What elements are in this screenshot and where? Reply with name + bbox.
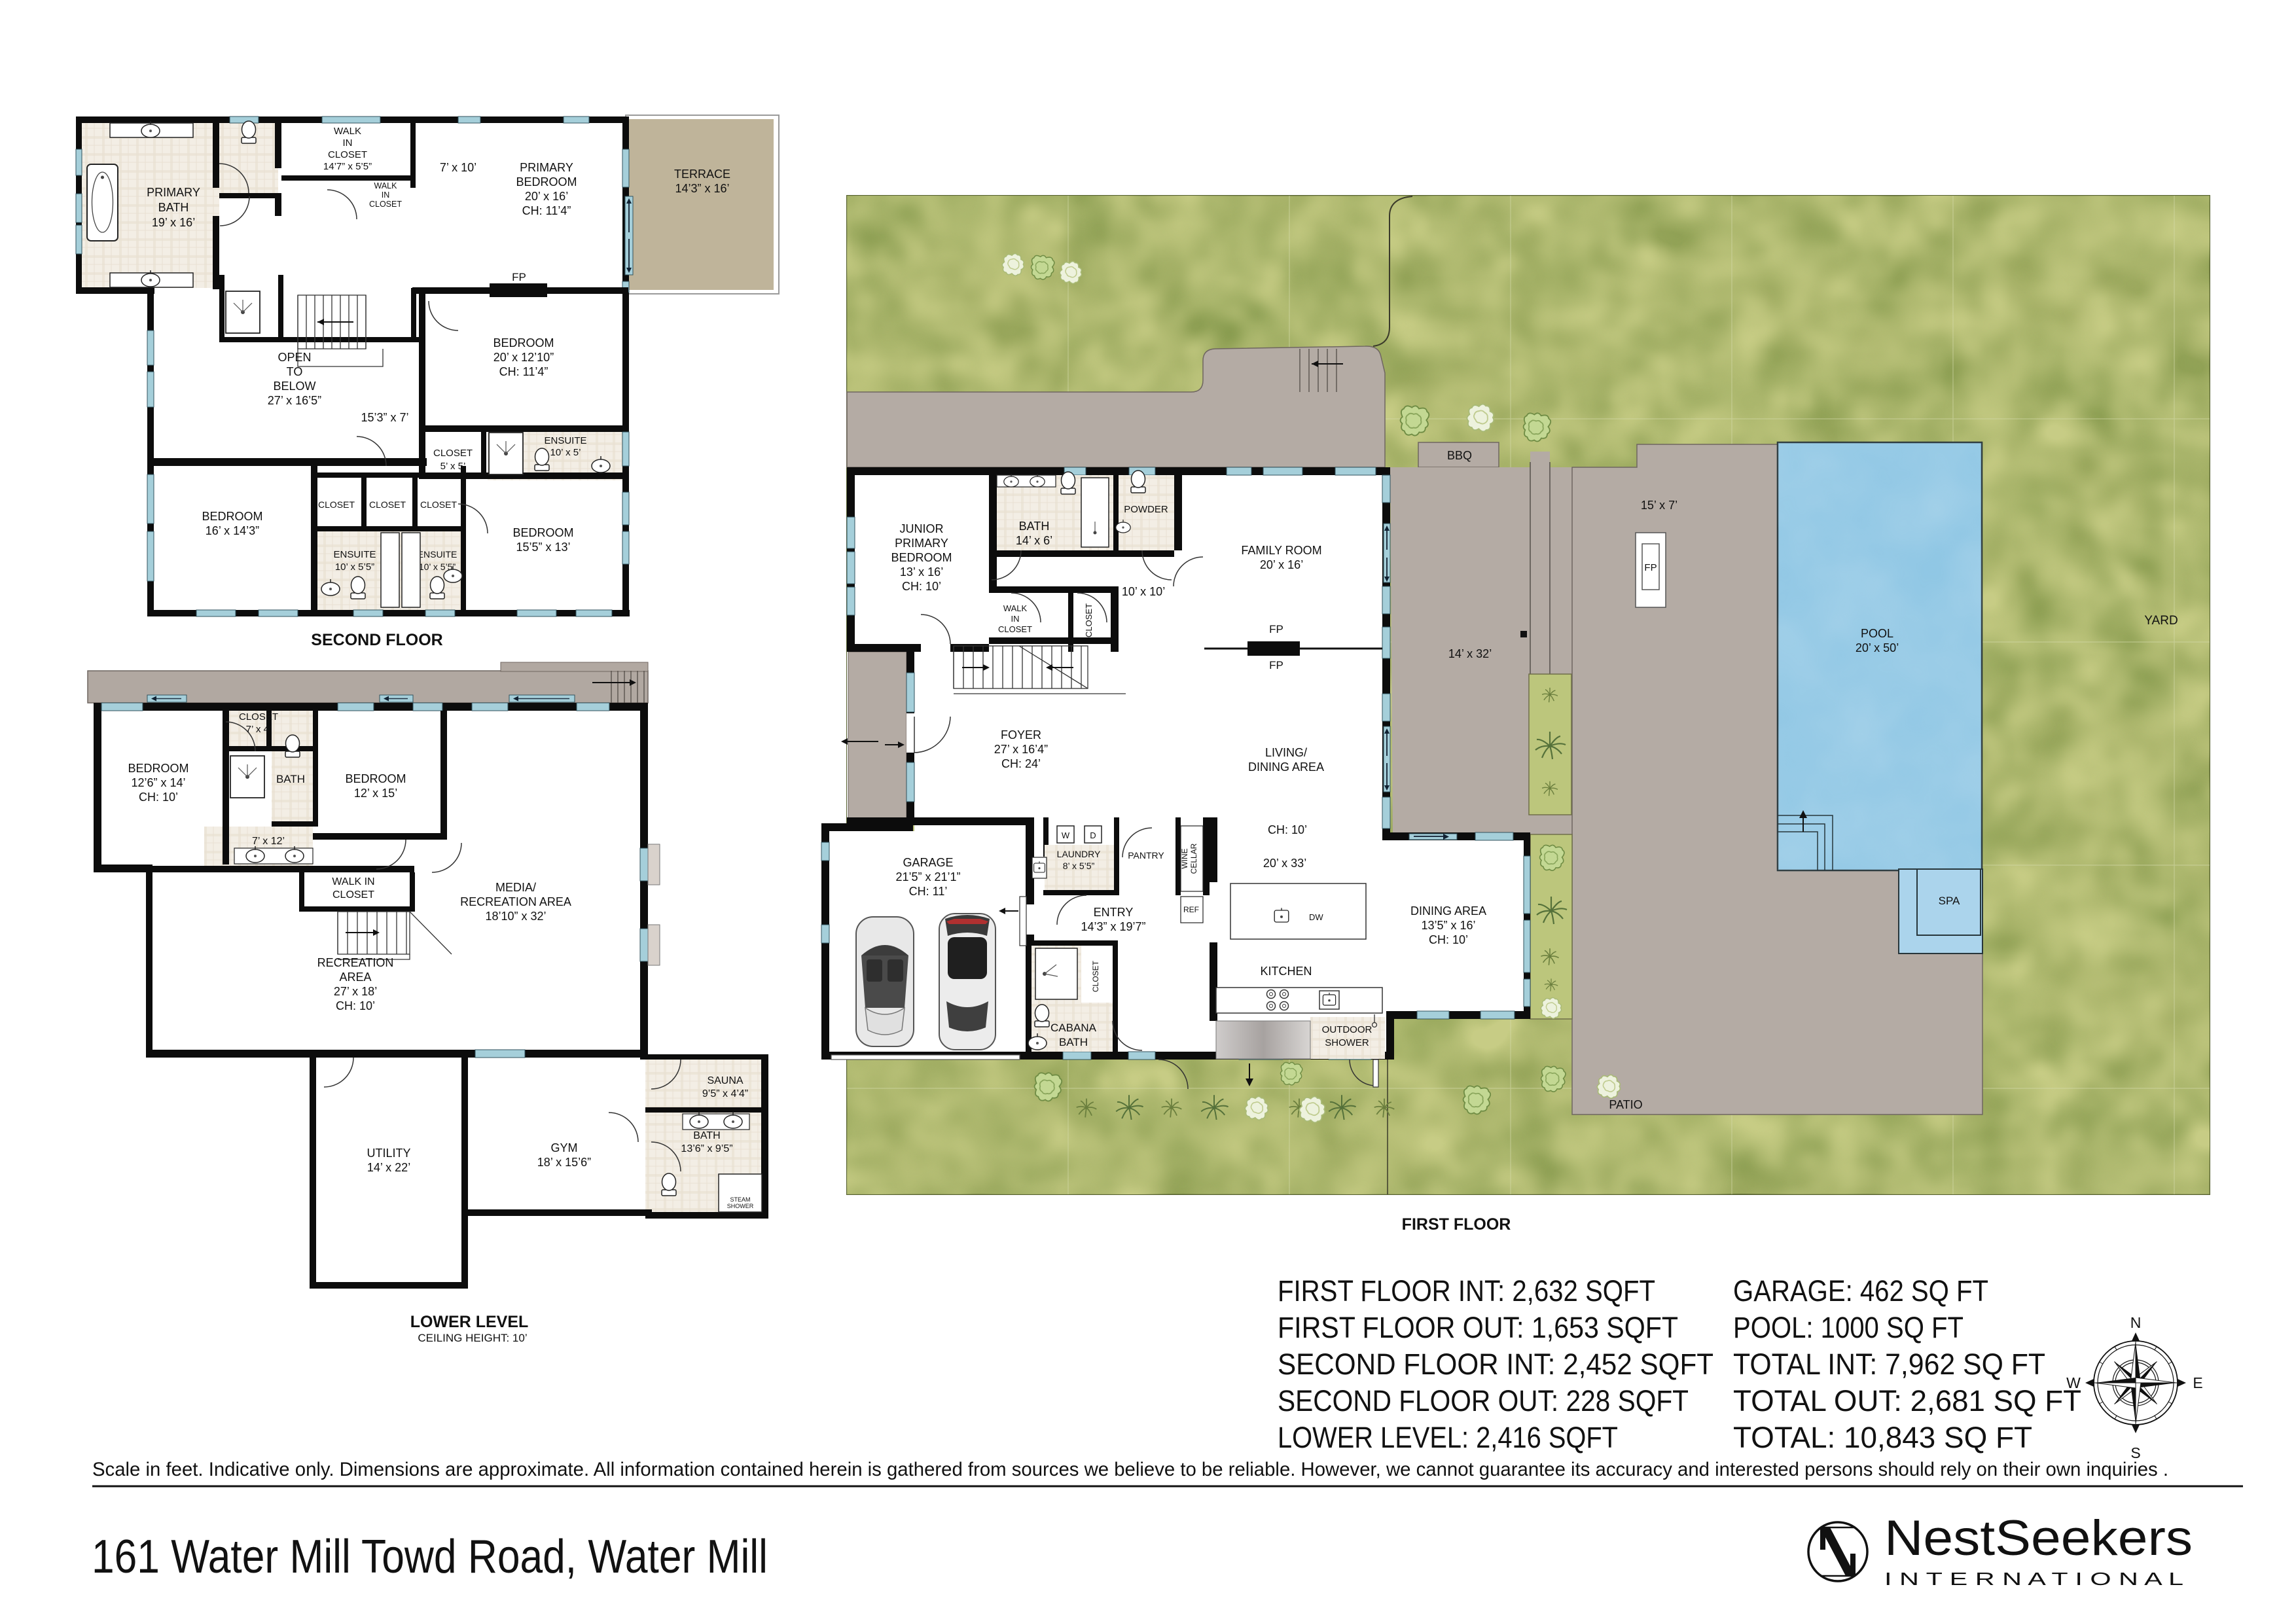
svg-text:WALK: WALK <box>334 126 361 137</box>
svg-text:OUTDOOR: OUTDOOR <box>1322 1024 1372 1035</box>
svg-text:14’3” x 16’: 14’3” x 16’ <box>675 182 729 195</box>
svg-text:16’ x 14’3”: 16’ x 14’3” <box>206 524 259 537</box>
svg-text:CEILING HEIGHT: 10’: CEILING HEIGHT: 10’ <box>418 1332 527 1344</box>
svg-text:MEDIA/: MEDIA/ <box>495 881 536 894</box>
svg-text:PATIO: PATIO <box>1609 1098 1642 1111</box>
svg-text:SHOWER: SHOWER <box>727 1203 754 1209</box>
svg-text:STEAM: STEAM <box>730 1196 750 1203</box>
svg-text:FOYER: FOYER <box>1001 728 1041 741</box>
svg-text:TOTAL INT: 7,962 SQ FT: TOTAL INT: 7,962 SQ FT <box>1733 1347 2045 1381</box>
svg-text:BEDROOM: BEDROOM <box>493 336 554 349</box>
svg-text:CH: 24’: CH: 24’ <box>1001 757 1041 770</box>
svg-text:20’ x 16’: 20’ x 16’ <box>525 190 568 203</box>
svg-text:14’ x 32’: 14’ x 32’ <box>1448 647 1492 660</box>
svg-text:POOL: POOL <box>1861 627 1893 640</box>
svg-text:POOL: 1000 SQ FT: POOL: 1000 SQ FT <box>1733 1311 1964 1344</box>
svg-text:CLOSET: CLOSET <box>369 200 402 209</box>
svg-text:CLOSET: CLOSET <box>1084 603 1094 637</box>
svg-text:BATH: BATH <box>158 201 189 214</box>
svg-text:LOWER LEVEL: 2,416 SQFT: LOWER LEVEL: 2,416 SQFT <box>1278 1421 1618 1454</box>
svg-text:IN: IN <box>1011 614 1020 624</box>
svg-text:20’ x 16’: 20’ x 16’ <box>1260 558 1303 571</box>
svg-text:27’ x 16’5”: 27’ x 16’5” <box>268 394 321 407</box>
svg-text:CABANA: CABANA <box>1050 1022 1097 1034</box>
svg-text:15’ x 7’: 15’ x 7’ <box>1641 499 1677 512</box>
svg-text:CLOSET: CLOSET <box>998 624 1032 634</box>
svg-text:ENTRY: ENTRY <box>1094 906 1134 919</box>
svg-text:12’6” x 14’: 12’6” x 14’ <box>131 776 185 789</box>
svg-text:FIRST FLOOR INT: 2,632 SQFT: FIRST FLOOR INT: 2,632 SQFT <box>1278 1274 1655 1308</box>
svg-text:OPEN: OPEN <box>278 351 311 364</box>
svg-text:Scale in feet. Indicative only: Scale in feet. Indicative only. Dimensio… <box>92 1459 2168 1480</box>
svg-text:CELLAR: CELLAR <box>1189 843 1198 874</box>
svg-text:FIRST FLOOR: FIRST FLOOR <box>1402 1215 1511 1234</box>
svg-text:YARD: YARD <box>2144 614 2178 628</box>
svg-text:CH: 11’4”: CH: 11’4” <box>522 204 571 217</box>
svg-text:BBQ: BBQ <box>1447 449 1472 462</box>
svg-text:RECREATION: RECREATION <box>317 956 394 969</box>
svg-text:PRIMARY: PRIMARY <box>520 161 573 174</box>
svg-text:8’ x 5’5”: 8’ x 5’5” <box>1063 861 1095 871</box>
svg-text:DINING AREA: DINING AREA <box>1410 904 1486 918</box>
svg-text:CLOSET: CLOSET <box>332 889 374 901</box>
svg-text:I N T E R N A T I O N A L: I N T E R N A T I O N A L <box>1884 1569 2183 1589</box>
svg-text:CH: 10’: CH: 10’ <box>336 999 375 1012</box>
svg-text:14’7” x 5’5”: 14’7” x 5’5” <box>323 161 372 172</box>
svg-text:14’ x 6’: 14’ x 6’ <box>1016 534 1052 547</box>
svg-text:SECOND FLOOR INT: 2,452 SQFT: SECOND FLOOR INT: 2,452 SQFT <box>1278 1347 1713 1381</box>
svg-text:SPA: SPA <box>1939 895 1960 907</box>
svg-text:20’ x 50’: 20’ x 50’ <box>1856 641 1899 654</box>
svg-text:BEDROOM: BEDROOM <box>202 510 262 523</box>
svg-text:19’ x 16’: 19’ x 16’ <box>152 216 195 229</box>
svg-text:13’ x 16’: 13’ x 16’ <box>900 565 943 579</box>
svg-text:JUNIOR: JUNIOR <box>900 522 944 535</box>
svg-text:WALK: WALK <box>374 181 398 190</box>
svg-text:POWDER: POWDER <box>1124 504 1168 515</box>
svg-text:20’ x 12’10”: 20’ x 12’10” <box>493 351 554 364</box>
svg-text:D: D <box>1090 830 1096 840</box>
svg-text:FIRST FLOOR OUT: 1,653 SQFT: FIRST FLOOR OUT: 1,653 SQFT <box>1278 1311 1678 1344</box>
svg-text:CH: 11’4”: CH: 11’4” <box>499 365 548 378</box>
svg-text:BEDROOM: BEDROOM <box>512 526 573 539</box>
svg-text:161 Water Mill Towd Road, Wate: 161 Water Mill Towd Road, Water Mill <box>92 1531 768 1583</box>
svg-text:BATH: BATH <box>1059 1036 1088 1048</box>
svg-text:AREA: AREA <box>339 971 371 984</box>
svg-text:CLOSET: CLOSET <box>420 499 457 510</box>
svg-text:CH: 10’: CH: 10’ <box>1429 933 1468 946</box>
svg-text:WALK: WALK <box>1003 603 1028 613</box>
svg-text:BEDROOM: BEDROOM <box>891 551 952 564</box>
svg-text:PRIMARY: PRIMARY <box>895 537 948 550</box>
svg-text:E: E <box>2193 1374 2202 1391</box>
svg-text:21’5” x 21’1”: 21’5” x 21’1” <box>895 870 960 883</box>
svg-text:SECOND FLOOR: SECOND FLOOR <box>311 631 442 649</box>
svg-text:7’ x 12’: 7’ x 12’ <box>252 836 285 847</box>
svg-text:W: W <box>1062 830 1070 840</box>
svg-text:DINING AREA: DINING AREA <box>1248 760 1324 774</box>
svg-text:15’3” x 7’: 15’3” x 7’ <box>361 411 408 424</box>
svg-text:FP: FP <box>1269 623 1283 635</box>
svg-text:BATH: BATH <box>276 773 305 785</box>
svg-text:BATH: BATH <box>1019 520 1050 533</box>
svg-text:CH: 11’: CH: 11’ <box>909 885 948 898</box>
svg-text:IN: IN <box>382 190 390 200</box>
svg-text:TOTAL OUT: 2,681 SQ FT: TOTAL OUT: 2,681 SQ FT <box>1733 1384 2081 1418</box>
svg-text:7’ x 4’: 7’ x 4’ <box>246 724 272 735</box>
svg-text:BELOW: BELOW <box>273 380 315 393</box>
svg-text:20’ x 33’: 20’ x 33’ <box>1263 857 1306 870</box>
svg-text:9’5” x 4’4”: 9’5” x 4’4” <box>702 1088 748 1099</box>
svg-text:18’10” x 32’: 18’10” x 32’ <box>485 910 546 923</box>
svg-text:GYM: GYM <box>550 1141 577 1154</box>
svg-text:KITCHEN: KITCHEN <box>1260 965 1312 978</box>
svg-text:ENSUITE: ENSUITE <box>333 549 376 560</box>
svg-text:15’5” x 13’: 15’5” x 13’ <box>516 541 570 554</box>
svg-text:14’3” x 19’7”: 14’3” x 19’7” <box>1081 920 1145 933</box>
svg-text:CH: 10’: CH: 10’ <box>1268 823 1307 836</box>
svg-text:12’ x 15’: 12’ x 15’ <box>354 787 397 800</box>
svg-text:ENSUITE: ENSUITE <box>544 435 586 446</box>
svg-text:SHOWER: SHOWER <box>1325 1037 1369 1048</box>
svg-text:UTILITY: UTILITY <box>367 1147 410 1160</box>
svg-text:W: W <box>2066 1374 2081 1391</box>
svg-text:LOWER LEVEL: LOWER LEVEL <box>410 1313 529 1331</box>
svg-text:SECOND FLOOR OUT: 228 SQFT: SECOND FLOOR OUT: 228 SQFT <box>1278 1384 1689 1418</box>
svg-text:CLOSET: CLOSET <box>239 711 278 722</box>
svg-text:CLOSET: CLOSET <box>433 448 473 459</box>
svg-text:IN: IN <box>343 137 353 149</box>
svg-text:10’ x 10’: 10’ x 10’ <box>1122 585 1165 598</box>
svg-text:13’6” x 9’5”: 13’6” x 9’5” <box>681 1143 732 1154</box>
svg-text:WALK IN: WALK IN <box>332 876 374 887</box>
svg-text:CH: 10’: CH: 10’ <box>139 791 178 804</box>
svg-text:13’5” x 16’: 13’5” x 16’ <box>1421 919 1475 932</box>
svg-text:FAMILY ROOM: FAMILY ROOM <box>1241 544 1321 557</box>
svg-text:TO: TO <box>287 365 303 378</box>
svg-text:GARAGE: GARAGE <box>903 856 953 869</box>
svg-text:NestSeekers: NestSeekers <box>1884 1510 2193 1566</box>
svg-text:10’ x 5’: 10’ x 5’ <box>550 447 581 458</box>
svg-text:FP: FP <box>512 271 526 283</box>
svg-text:LIVING/: LIVING/ <box>1265 746 1307 759</box>
svg-text:LAUNDRY: LAUNDRY <box>1057 849 1101 859</box>
svg-text:GARAGE: 462 SQ FT: GARAGE: 462 SQ FT <box>1733 1274 1988 1308</box>
svg-text:RECREATION AREA: RECREATION AREA <box>460 895 571 908</box>
svg-text:7’ x 10’: 7’ x 10’ <box>440 161 476 174</box>
svg-text:CLOSET: CLOSET <box>318 499 355 510</box>
svg-text:ENSUITE: ENSUITE <box>418 549 457 560</box>
svg-text:N: N <box>2130 1314 2142 1331</box>
svg-text:WINE: WINE <box>1180 848 1189 868</box>
svg-text:CLOSET: CLOSET <box>369 499 406 510</box>
svg-text:BATH: BATH <box>693 1130 720 1141</box>
svg-text:10’ x 5’5”: 10’ x 5’5” <box>335 562 374 573</box>
svg-text:BEDROOM: BEDROOM <box>345 772 406 785</box>
svg-text:DW: DW <box>1309 912 1323 922</box>
svg-text:BEDROOM: BEDROOM <box>128 762 188 775</box>
svg-text:TOTAL: 10,843 SQ FT: TOTAL: 10,843 SQ FT <box>1733 1421 2032 1454</box>
svg-text:CLOSET: CLOSET <box>1091 960 1100 992</box>
svg-text:FP: FP <box>1644 562 1657 573</box>
svg-text:BEDROOM: BEDROOM <box>516 175 577 188</box>
svg-text:FP: FP <box>1269 659 1283 671</box>
svg-text:SAUNA: SAUNA <box>707 1075 743 1086</box>
svg-text:18’ x 15’6”: 18’ x 15’6” <box>537 1156 591 1169</box>
svg-text:TERRACE: TERRACE <box>674 168 730 181</box>
svg-text:CH: 10’: CH: 10’ <box>902 580 941 593</box>
svg-text:27’ x 18’: 27’ x 18’ <box>334 985 377 998</box>
svg-text:14’ x 22’: 14’ x 22’ <box>367 1161 410 1174</box>
svg-text:5’ x 5’: 5’ x 5’ <box>440 461 466 472</box>
svg-text:PANTRY: PANTRY <box>1128 850 1164 861</box>
svg-text:REF: REF <box>1183 905 1199 914</box>
svg-text:27’ x 16’4”: 27’ x 16’4” <box>994 743 1048 756</box>
svg-text:PRIMARY: PRIMARY <box>147 186 200 199</box>
svg-text:CLOSET: CLOSET <box>328 149 367 160</box>
